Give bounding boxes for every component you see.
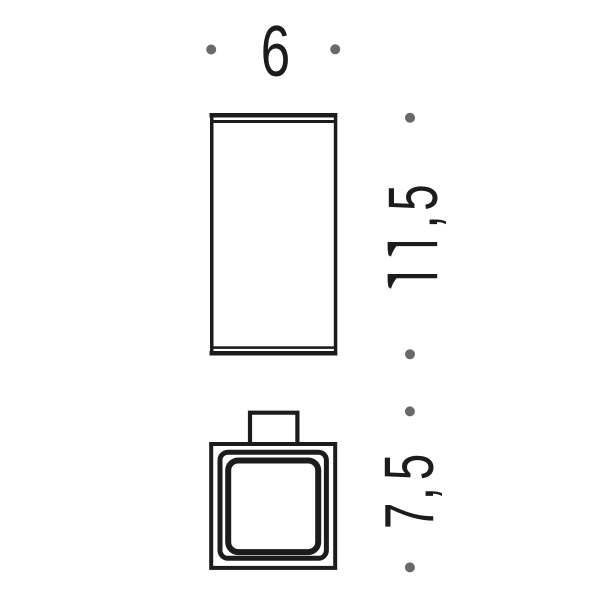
- svg-text:6: 6: [261, 12, 291, 92]
- svg-text:7: 7: [370, 503, 448, 529]
- svg-text:5: 5: [374, 184, 452, 210]
- svg-text:,: ,: [374, 215, 452, 228]
- svg-text:5: 5: [370, 454, 448, 480]
- svg-text:,: ,: [370, 487, 448, 500]
